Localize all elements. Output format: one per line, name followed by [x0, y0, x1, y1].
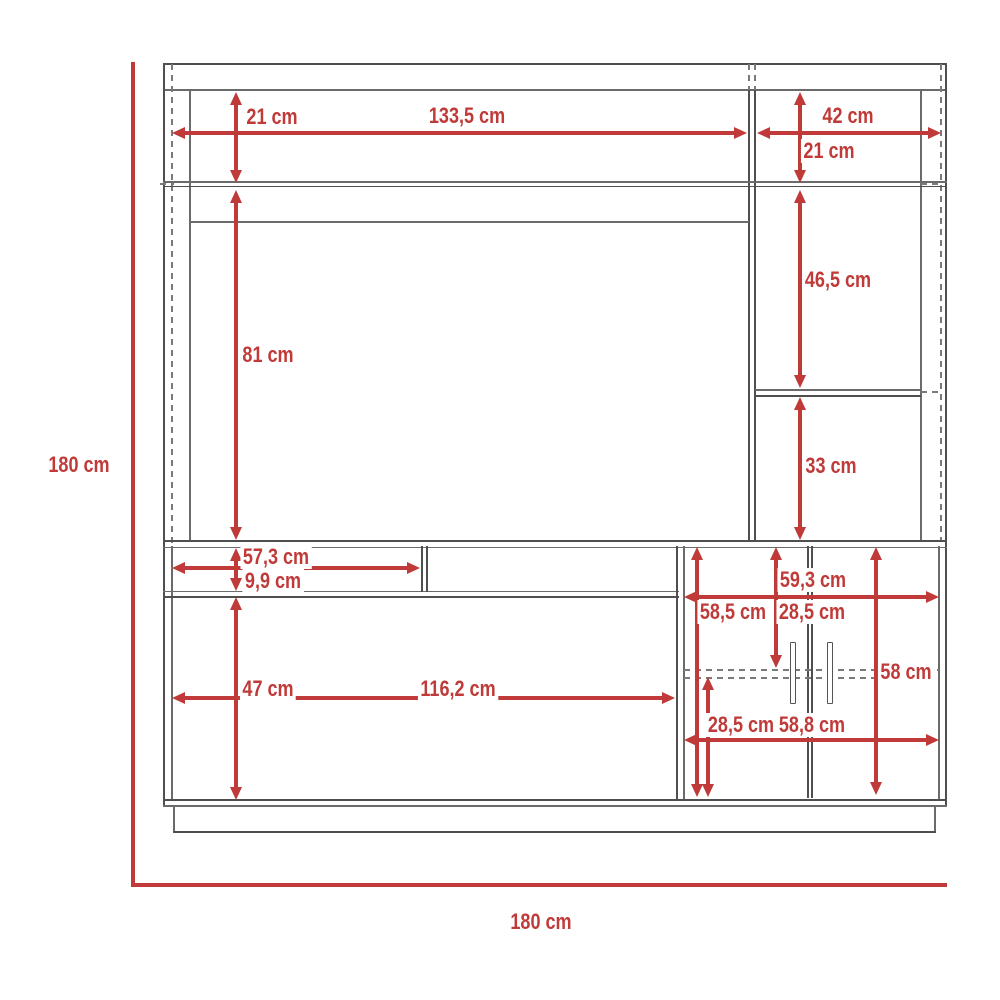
outline-right-edge [945, 63, 947, 806]
top-shelf-line-a [163, 181, 947, 183]
left-panel-inner [189, 90, 191, 541]
dim-label-133-5: 133,5 cm [426, 104, 507, 128]
right-shelf-line-b [755, 395, 921, 397]
dim-label-9-9: 9,9 cm [242, 569, 303, 593]
back-rail-line [189, 221, 749, 223]
cabinet-left-a [676, 546, 678, 800]
lower-left-inner [171, 546, 173, 800]
right-shelf-hidden [921, 391, 941, 393]
dim-label-42: 42 cm [820, 104, 876, 128]
center-divider-b [754, 90, 756, 541]
dim-label-33: 33 cm [803, 454, 859, 478]
dim-label-58: 58 cm [878, 660, 934, 684]
niche-divider-a [421, 546, 423, 592]
dim-label-47: 47 cm [240, 677, 296, 701]
dim-label-81: 81 cm [240, 343, 296, 367]
dim-label-46-5: 46,5 cm [802, 268, 873, 292]
top-shelf-line-b [163, 186, 947, 188]
cabinet-right-inner [938, 546, 940, 800]
center-divider-a [748, 90, 750, 541]
upper-section-bottom [163, 540, 947, 542]
hidden-edge-divider-b [754, 64, 756, 90]
dim-label-overall-height: 180 cm [46, 453, 112, 477]
plinth-bottom [173, 831, 936, 833]
door-handle-left [790, 642, 796, 704]
dim-label-28-5-lower: 28,5 cm [705, 713, 776, 737]
dim-label-116-2: 116,2 cm [418, 677, 498, 701]
bottom-board-top [163, 799, 947, 801]
dimension-drawing: 21 cm 133,5 cm 42 cm 21 cm 81 cm 46,5 cm… [0, 0, 1000, 1000]
outline-left-edge [163, 63, 165, 806]
dim-label-28-5-upper: 28,5 cm [776, 600, 847, 624]
cabinet-left-b [683, 546, 685, 800]
niche-divider-b [426, 546, 428, 592]
hidden-edge-divider-a [748, 64, 750, 90]
dim-label-58-8: 58,8 cm [776, 713, 847, 737]
plinth-right [934, 806, 936, 832]
door-handle-right [827, 642, 833, 704]
outline-top-band-bottom [163, 89, 947, 91]
overall-height-line [131, 62, 135, 886]
top-shelf-hidden-left [160, 183, 174, 185]
overall-width-line [131, 883, 947, 887]
dim-label-57-3: 57,3 cm [240, 545, 311, 569]
outline-top-edge [163, 63, 947, 65]
bottom-board-bottom [163, 805, 947, 807]
plinth-left [173, 806, 175, 832]
right-shelf-line-a [755, 389, 921, 391]
right-panel-inner [920, 90, 922, 541]
dim-label-upper-left-21: 21 cm [244, 105, 300, 129]
dim-label-upper-right-21: 21 cm [801, 139, 857, 163]
dim-label-58-5: 58,5 cm [697, 600, 768, 624]
top-shelf-hidden-right [921, 183, 941, 185]
dim-label-59-3: 59,3 cm [777, 568, 848, 592]
dim-label-overall-width: 180 cm [508, 910, 574, 934]
